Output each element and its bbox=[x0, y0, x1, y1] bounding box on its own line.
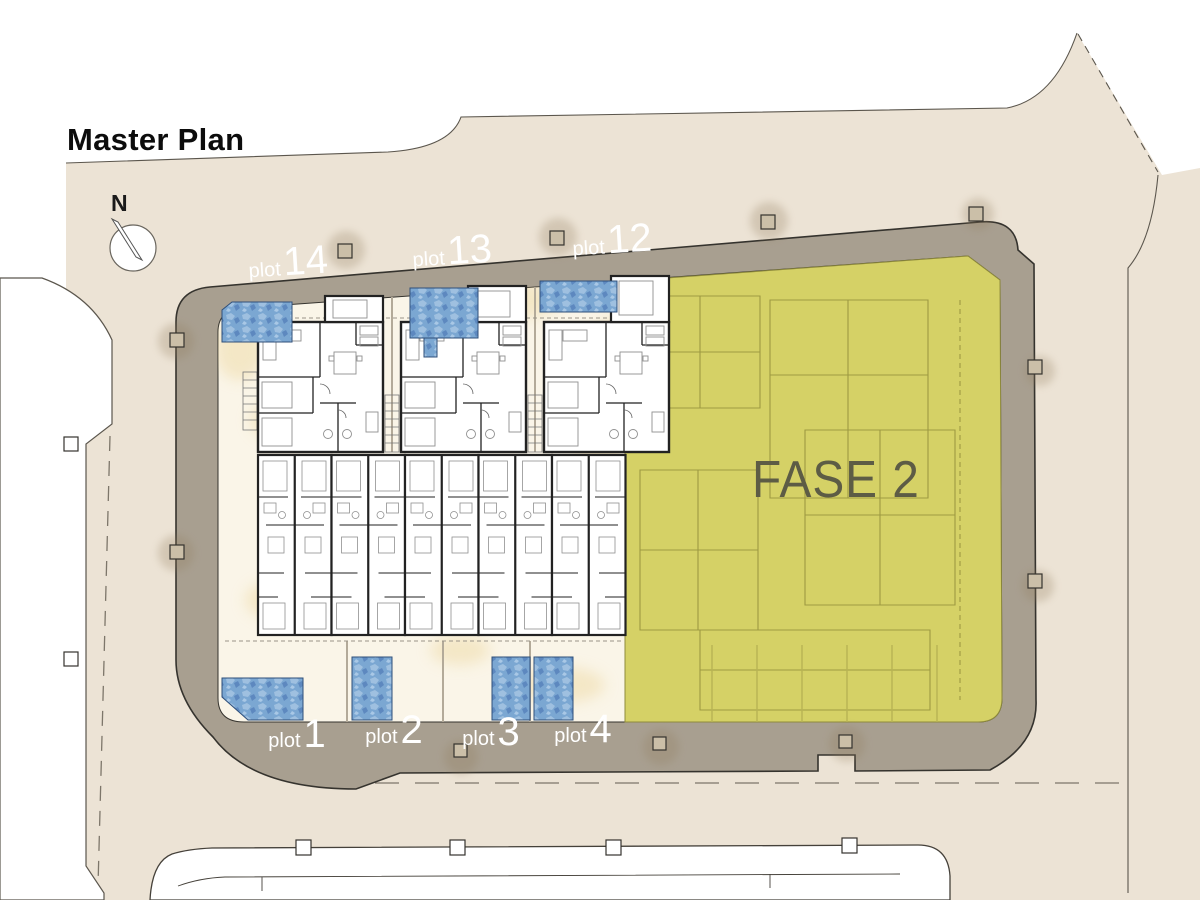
street-lamp bbox=[606, 840, 621, 855]
street-lamp bbox=[550, 231, 564, 245]
street-lamp bbox=[761, 215, 775, 229]
street-lamp bbox=[653, 737, 666, 750]
pool bbox=[492, 657, 530, 720]
street-lamp bbox=[338, 244, 352, 258]
pool bbox=[534, 657, 573, 720]
street-lamp bbox=[296, 840, 311, 855]
street-lamp bbox=[454, 744, 467, 757]
rowhouse-floorplans bbox=[258, 455, 626, 635]
street-lamp bbox=[64, 437, 78, 451]
street-lamp bbox=[969, 207, 983, 221]
street-lamp bbox=[64, 652, 78, 666]
bottom-block bbox=[150, 845, 950, 900]
street-lamp bbox=[839, 735, 852, 748]
street-lamp bbox=[1028, 360, 1042, 374]
street-lamp bbox=[1028, 574, 1042, 588]
master-plan-drawing bbox=[0, 0, 1200, 900]
pool bbox=[540, 281, 617, 312]
street-lamp bbox=[842, 838, 857, 853]
phase2-overlay bbox=[625, 256, 1002, 722]
street-lamp bbox=[450, 840, 465, 855]
pool-steps bbox=[424, 338, 437, 357]
pool bbox=[352, 657, 392, 720]
pool bbox=[222, 302, 292, 342]
street-lamp bbox=[170, 333, 184, 347]
street-lamp bbox=[170, 545, 184, 559]
pool bbox=[410, 288, 478, 338]
master-plan-page: Master Plan N FASE 2 plot14 plot13 plot1… bbox=[0, 0, 1200, 900]
